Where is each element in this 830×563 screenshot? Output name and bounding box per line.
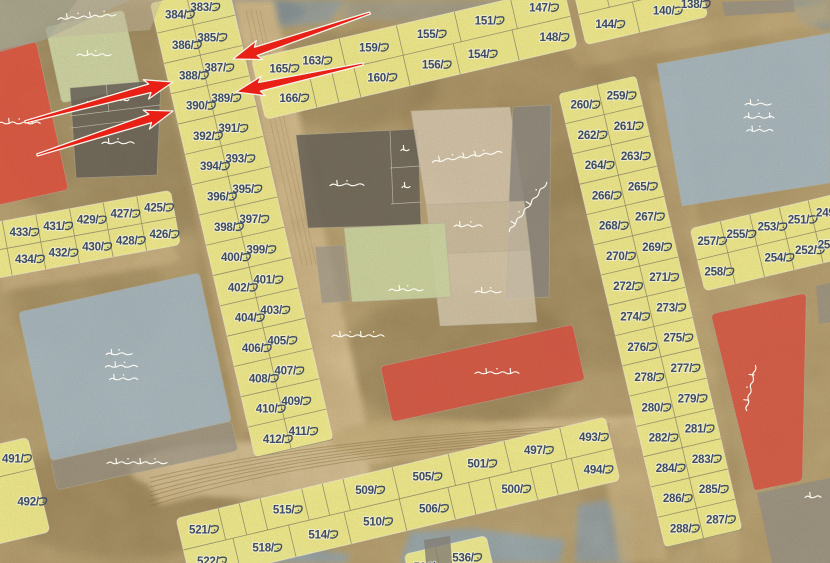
svg-text:400/: 400/: [221, 251, 244, 264]
svg-text:269/: 269/: [642, 241, 665, 254]
svg-text:250/: 250/: [818, 239, 830, 252]
svg-text:384/: 384/: [165, 9, 188, 22]
svg-text:165/: 165/: [269, 62, 292, 75]
svg-text:394/: 394/: [200, 160, 223, 173]
svg-text:429/: 429/: [77, 214, 100, 227]
svg-text:159/: 159/: [359, 41, 382, 54]
svg-text:404/: 404/: [235, 312, 258, 325]
svg-text:265/: 265/: [628, 180, 651, 193]
svg-text:500/: 500/: [501, 483, 524, 496]
svg-text:536/: 536/: [452, 551, 475, 563]
svg-text:160/: 160/: [367, 71, 390, 84]
svg-text:497/: 497/: [524, 444, 547, 457]
svg-text:425/: 425/: [144, 201, 167, 214]
svg-text:277/: 277/: [671, 362, 694, 375]
svg-text:427/: 427/: [111, 208, 134, 221]
svg-text:273/: 273/: [656, 301, 679, 314]
svg-text:147/: 147/: [529, 2, 552, 15]
svg-text:505/: 505/: [413, 471, 436, 484]
svg-text:288/: 288/: [670, 523, 693, 536]
svg-text:506/: 506/: [419, 502, 442, 515]
svg-text:282/: 282/: [649, 432, 672, 445]
svg-text:518/: 518/: [252, 542, 275, 555]
svg-text:412/: 412/: [263, 433, 286, 446]
svg-text:274/: 274/: [620, 311, 643, 324]
svg-text:396/: 396/: [207, 191, 230, 204]
svg-text:278/: 278/: [634, 371, 657, 384]
svg-text:257/: 257/: [697, 235, 720, 248]
svg-text:251/: 251/: [788, 213, 811, 226]
svg-text:406/: 406/: [242, 342, 265, 355]
svg-text:522/: 522/: [197, 555, 220, 563]
svg-text:279/: 279/: [678, 392, 701, 405]
svg-text:148/: 148/: [540, 31, 563, 44]
svg-text:388/: 388/: [179, 69, 202, 82]
svg-text:402/: 402/: [228, 281, 251, 294]
svg-text:138/: 138/: [681, 0, 704, 11]
svg-text:272/: 272/: [613, 280, 636, 293]
svg-text:509/: 509/: [355, 484, 378, 497]
svg-text:491/: 491/: [2, 452, 25, 465]
svg-text:260/: 260/: [571, 99, 594, 112]
svg-text:410/: 410/: [256, 403, 279, 416]
svg-text:285/: 285/: [699, 483, 722, 496]
svg-text:140/: 140/: [653, 5, 676, 18]
svg-text:253/: 253/: [758, 221, 781, 234]
svg-text:268/: 268/: [599, 220, 622, 233]
svg-text:283/: 283/: [692, 453, 715, 466]
svg-text:258/: 258/: [704, 266, 727, 279]
svg-text:521/: 521/: [189, 523, 212, 536]
svg-text:432/: 432/: [49, 247, 72, 260]
svg-text:155/: 155/: [417, 28, 440, 41]
svg-text:144/: 144/: [595, 18, 618, 31]
svg-text:270/: 270/: [606, 250, 629, 263]
svg-text:408/: 408/: [249, 372, 272, 385]
svg-text:255/: 255/: [727, 228, 750, 241]
svg-text:431/: 431/: [43, 220, 66, 233]
svg-text:287/: 287/: [706, 513, 729, 526]
svg-text:254/: 254/: [765, 251, 788, 264]
svg-text:428/: 428/: [116, 234, 139, 247]
svg-text:166/: 166/: [279, 92, 302, 105]
svg-text:510/: 510/: [363, 516, 386, 529]
svg-text:163/: 163/: [302, 55, 325, 68]
svg-text:281/: 281/: [685, 423, 708, 436]
svg-text:264/: 264/: [585, 159, 608, 172]
svg-text:262/: 262/: [578, 129, 601, 142]
svg-text:276/: 276/: [627, 341, 650, 354]
svg-text:154/: 154/: [468, 48, 491, 61]
svg-text:398/: 398/: [214, 221, 237, 234]
svg-text:433/: 433/: [10, 226, 33, 239]
svg-text:280/: 280/: [642, 401, 665, 414]
svg-text:261/: 261/: [614, 120, 637, 133]
svg-text:390/: 390/: [186, 100, 209, 113]
svg-text:249/: 249/: [816, 207, 830, 220]
svg-text:266/: 266/: [592, 189, 615, 202]
svg-text:286/: 286/: [663, 492, 686, 505]
svg-text:252/: 252/: [795, 244, 818, 257]
svg-text:494/: 494/: [584, 463, 607, 476]
svg-text:151/: 151/: [475, 14, 498, 27]
svg-text:492/: 492/: [17, 495, 40, 508]
svg-text:259/: 259/: [607, 90, 630, 103]
svg-text:263/: 263/: [621, 150, 644, 163]
svg-text:434/: 434/: [15, 253, 38, 266]
svg-text:493/: 493/: [579, 431, 602, 444]
svg-text:275/: 275/: [663, 332, 686, 345]
svg-text:392/: 392/: [193, 130, 216, 143]
svg-text:284/: 284/: [656, 462, 679, 475]
svg-text:514/: 514/: [308, 529, 331, 542]
svg-text:501/: 501/: [467, 458, 490, 471]
svg-text:515/: 515/: [273, 504, 296, 517]
svg-text:271/: 271/: [649, 271, 672, 284]
svg-text:386/: 386/: [172, 39, 195, 52]
svg-text:430/: 430/: [82, 241, 105, 254]
svg-text:426/: 426/: [150, 228, 173, 241]
svg-text:156/: 156/: [422, 59, 445, 72]
svg-text:267/: 267/: [635, 211, 658, 224]
